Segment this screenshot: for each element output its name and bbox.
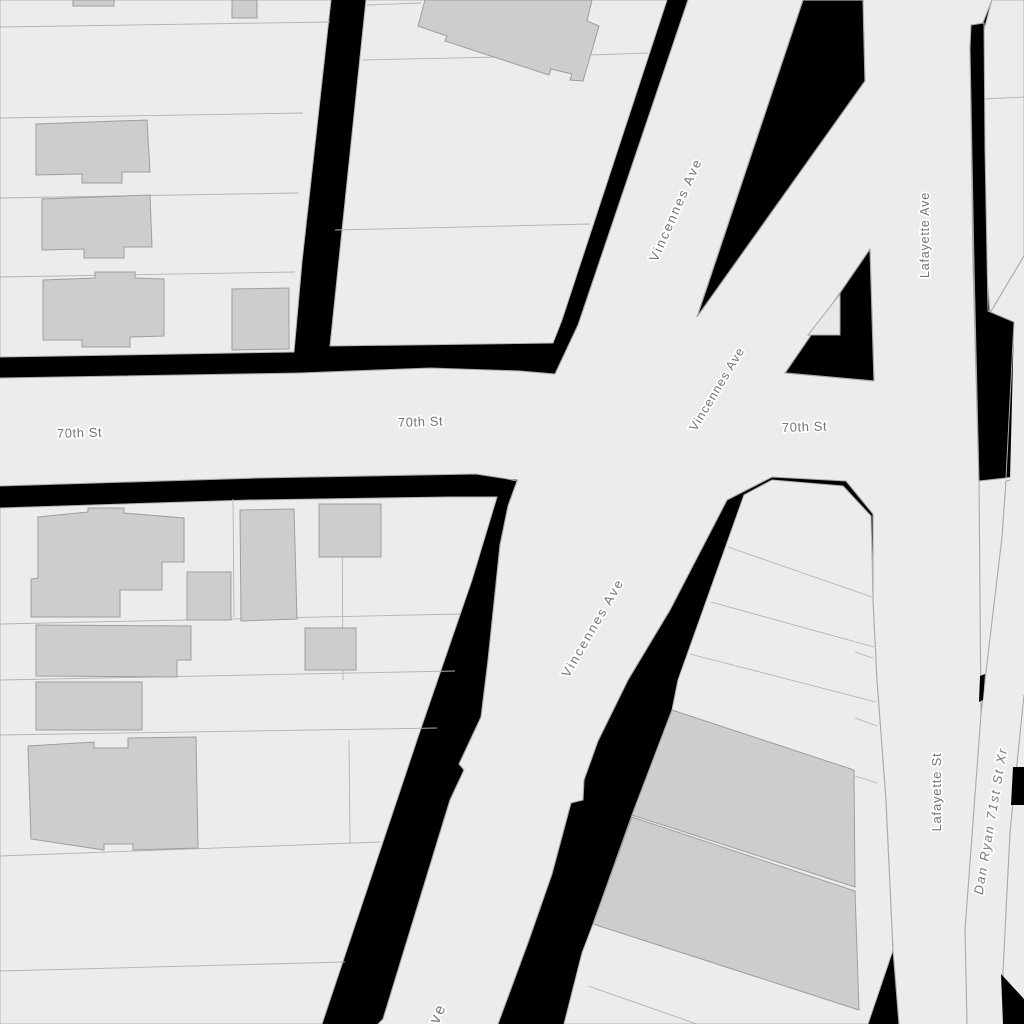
svg-text:70th St: 70th St bbox=[782, 418, 828, 435]
svg-text:70th St: 70th St bbox=[57, 425, 103, 441]
svg-text:Lafayette Ave: Lafayette Ave bbox=[918, 192, 932, 278]
svg-text:Lafayette St: Lafayette St bbox=[929, 753, 944, 832]
svg-text:70th St: 70th St bbox=[398, 413, 444, 430]
